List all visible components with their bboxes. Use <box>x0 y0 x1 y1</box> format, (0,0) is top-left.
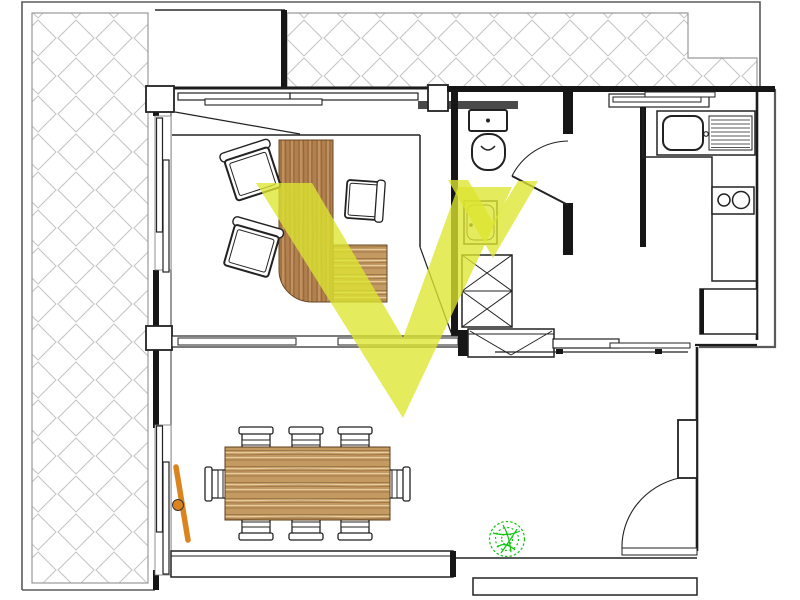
top-terrace <box>287 13 757 87</box>
left-sliding-pane <box>157 118 163 232</box>
dining-chair <box>239 427 273 447</box>
track-stop <box>655 349 662 354</box>
kitchen-window-pane <box>613 97 701 102</box>
bottom-window-post <box>450 551 456 577</box>
entry-threshold <box>622 548 697 555</box>
fridge <box>700 289 757 334</box>
floor-plan-page <box>0 0 800 600</box>
entry-door <box>622 420 697 555</box>
bottom-window-band <box>171 551 453 577</box>
bathroom-right-wall <box>563 86 573 134</box>
kitchen-window-pane <box>645 92 715 97</box>
left-sliding-pane <box>157 426 163 532</box>
wall-pier <box>146 326 172 350</box>
wall-pier <box>428 85 448 111</box>
left-sliding-pane <box>163 462 169 574</box>
guest-chair <box>345 178 386 223</box>
dining-chair <box>338 520 372 540</box>
dining-chair <box>289 520 323 540</box>
left-sliding-pane <box>163 160 169 272</box>
hallway-storage <box>462 255 690 357</box>
partition-open-leaf <box>175 112 300 134</box>
open-window-leaf <box>173 467 189 540</box>
entry-door-leaf <box>678 420 697 478</box>
shoe-cabinet <box>468 329 554 357</box>
wall-pier <box>146 86 174 112</box>
sliding-door-panel <box>610 343 690 348</box>
sliding-door-panel <box>553 339 619 348</box>
sink-drainer <box>709 116 752 150</box>
toilet-bowl <box>472 134 505 170</box>
bathroom-door-arc <box>512 141 568 176</box>
entry-door-arc <box>622 478 679 549</box>
dining-chair <box>239 520 273 540</box>
dining-chair <box>289 427 323 447</box>
toilet-button <box>486 119 490 123</box>
bathroom-top-wall <box>447 86 565 92</box>
sink-bowl <box>663 116 703 150</box>
dining-table <box>225 447 390 520</box>
office-chair <box>221 216 285 278</box>
living-dining <box>173 420 698 557</box>
kitchen <box>643 108 757 334</box>
top-sliding-pane <box>205 99 322 105</box>
top-divider-wall <box>281 10 287 88</box>
floor-plan-canvas <box>0 0 800 600</box>
kitchen-top-wall <box>563 86 775 92</box>
partition-pane <box>178 338 296 345</box>
left-terrace <box>32 13 148 583</box>
track-stop <box>556 349 563 354</box>
dining-chair <box>338 427 372 447</box>
bottom-outer-wall <box>473 578 697 595</box>
window-hinge <box>173 500 184 511</box>
dining-chair <box>390 467 410 501</box>
fridge-hinge-side <box>700 289 704 334</box>
potted-plant <box>490 522 525 557</box>
dining-chair <box>205 467 225 501</box>
bathroom-right-wall <box>563 203 573 255</box>
